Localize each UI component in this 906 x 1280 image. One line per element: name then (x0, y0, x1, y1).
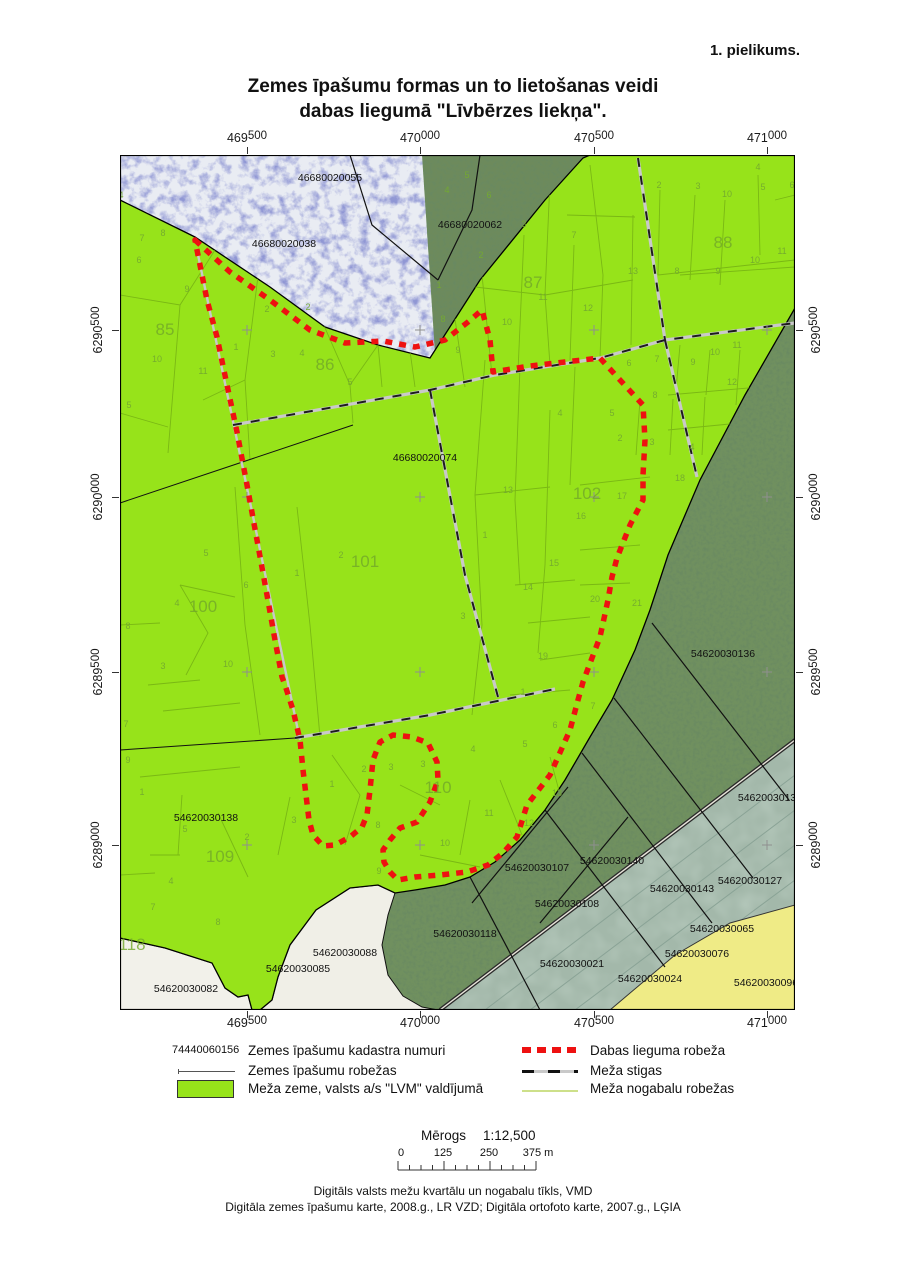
cadastral-number-label: 54620030137 (738, 792, 795, 804)
parcel-number-label: 19 (538, 651, 548, 661)
cadastral-number-label: 54620030127 (718, 875, 782, 887)
parcel-number-label: 3 (521, 219, 526, 229)
cadastral-number-label: 54620030082 (154, 983, 218, 995)
parcel-number-label: 9 (715, 266, 720, 276)
grid-tick (247, 1011, 248, 1018)
parcel-number-label: 2 (264, 304, 269, 314)
parcel-number-label: 5 (203, 548, 208, 558)
grid-tick (594, 1011, 595, 1018)
cadastral-number-label: 54620030136 (691, 648, 755, 660)
parcel-number-label: 10 (710, 347, 720, 357)
grid-tick (420, 1011, 421, 1018)
forest-block-label: 88 (714, 233, 733, 252)
parcel-number-label: 3 (388, 762, 393, 772)
parcel-number-label: 11 (732, 340, 741, 350)
easting-label-bottom: 469500 (227, 1016, 267, 1030)
scale-ruler (396, 1158, 546, 1172)
scale-ratio: 1:12,500 (483, 1128, 536, 1143)
parcel-number-label: 4 (470, 744, 475, 754)
parcel-number-label: 9 (376, 866, 381, 876)
parcel-number-label: 5 (347, 377, 352, 387)
parcel-number-label: 3 (160, 661, 165, 671)
easting-label-bottom: 470500 (574, 1016, 614, 1030)
grid-tick (112, 845, 119, 846)
easting-label-top: 469500 (227, 131, 267, 145)
cadastral-number-label: 54620030021 (540, 958, 604, 970)
parcel-number-label: 11 (777, 246, 786, 256)
parcel-number-label: 20 (590, 594, 600, 604)
cadastral-number-label: 54620030108 (535, 898, 599, 910)
document-page: 1. pielikums. Zemes īpašumu formas un to… (0, 0, 906, 1280)
nogabali-line-swatch (522, 1090, 578, 1092)
cadastral-number-label: 54620030088 (313, 947, 377, 959)
legend-sample-cadastral: 74440060156 (172, 1044, 238, 1056)
parcel-number-label: 6 (552, 720, 557, 730)
cadastral-number-label: 54620030143 (650, 883, 714, 895)
grid-tick (767, 1011, 768, 1018)
parcel-number-label: 18 (675, 473, 685, 483)
parcel-number-label: 3 (695, 181, 700, 191)
annex-label: 1. pielikums. (0, 42, 800, 59)
parcel-number-label: 8 (160, 228, 165, 238)
northing-label-right: 6290000 (809, 474, 823, 521)
parcel-number-label: 2 (656, 180, 661, 190)
cadastral-number-label: 46680020038 (252, 238, 316, 250)
parcel-number-label: 8 (440, 314, 445, 324)
cadastral-number-label: 46680020074 (393, 452, 457, 464)
cadastral-number-label: 54620030107 (505, 862, 569, 874)
forest-block-label: 100 (189, 597, 217, 616)
parcel-number-label: 7 (123, 719, 128, 729)
map-svg: 4876921341011552456372189101112132310456… (120, 155, 795, 1010)
parcel-number-label: 11 (198, 366, 207, 376)
parcel-number-label: 12 (524, 818, 534, 828)
forest-block-label: 87 (524, 273, 543, 292)
parcel-number-label: 5 (522, 739, 527, 749)
cadastral-number-label: 54620030140 (580, 855, 644, 867)
parcel-number-label: 10 (440, 838, 450, 848)
parcel-number-label: 11 (484, 808, 493, 818)
easting-label-bottom: 470000 (400, 1016, 440, 1030)
legend-swatch-forest-fill (177, 1080, 234, 1098)
parcel-number-label: 8 (375, 820, 380, 830)
parcel-number-label: 5 (126, 400, 131, 410)
grid-tick (112, 497, 119, 498)
grid-tick (796, 672, 803, 673)
parcel-number-label: 8 (674, 266, 679, 276)
parcel-number-label: 13 (503, 485, 513, 495)
parcel-number-label: 2 (338, 550, 343, 560)
parcel-number-label: 4 (299, 348, 304, 358)
cadastral-number-label: 46680020055 (298, 172, 362, 184)
parcel-number-label: 10 (750, 255, 760, 265)
legend-label-forest-land: Meža zeme, valsts a/s "LVM" valdījumā (248, 1081, 483, 1096)
parcel-number-label: 1 (329, 779, 334, 789)
parcel-number-label: 17 (617, 491, 627, 501)
parcel-number-label: 10 (722, 189, 732, 199)
easting-label-bottom: 471000 (747, 1016, 787, 1030)
northing-label-left: 6290000 (91, 474, 105, 521)
parcel-number-label: 6 (243, 580, 248, 590)
grid-tick (767, 147, 768, 154)
parcel-number-label: 7 (571, 230, 576, 240)
parcel-number-label: 4 (168, 876, 173, 886)
parcel-number-label: 2 (478, 250, 483, 260)
parcel-number-label: 9 (125, 755, 130, 765)
grid-tick (112, 672, 119, 673)
grid-tick (796, 497, 803, 498)
parcel-number-label: 4 (755, 162, 760, 172)
parcel-number-label: 10 (152, 354, 162, 364)
parcel-number-label: 10 (223, 659, 233, 669)
cadastral-number-label: 54620030118 (433, 928, 497, 940)
property-line-swatch (178, 1071, 235, 1072)
map-title-line2: dabas liegumā "Līvbērzes liekņa". (0, 99, 906, 124)
parcel-number-label: 6 (136, 255, 141, 265)
cadastral-number-label: 54620030024 (618, 973, 682, 985)
parcel-number-label: 7 (139, 233, 144, 243)
parcel-number-label: 5 (182, 824, 187, 834)
cadastral-number-label: 54620030085 (266, 963, 330, 975)
parcel-number-label: 1 (294, 568, 299, 578)
parcel-number-label: 12 (583, 303, 593, 313)
cadastral-number-label: 46680020062 (438, 219, 502, 231)
parcel-number-label: 6 (626, 358, 631, 368)
forest-block-label: 85 (156, 320, 175, 339)
parcel-number-label: 1 (436, 280, 441, 290)
grid-tick (796, 845, 803, 846)
easting-label-top: 471000 (747, 131, 787, 145)
parcel-number-label: 2 (305, 302, 310, 312)
forest-block-label: 110 (424, 778, 451, 797)
legend-label-reserve-boundary: Dabas lieguma robeža (590, 1043, 725, 1058)
parcel-number-label: 1 (139, 787, 144, 797)
parcel-number-label: 9 (690, 357, 695, 367)
grid-tick (112, 330, 119, 331)
parcel-number-label: 13 (552, 788, 562, 798)
forest-block-label: 102 (573, 484, 601, 503)
grid-tick (247, 147, 248, 154)
parcel-number-label: 2 (617, 433, 622, 443)
parcel-number-label: 1 (482, 530, 487, 540)
map-title-line1: Zemes īpašumu formas un to lietošanas ve… (0, 74, 906, 99)
easting-label-top: 470000 (400, 131, 440, 145)
parcel-number-label: 7 (590, 701, 595, 711)
parcel-number-label: 13 (628, 266, 638, 276)
parcel-number-label: 12 (727, 377, 737, 387)
parcel-number-label: 3 (649, 437, 654, 447)
parcel-number-label: 16 (576, 511, 586, 521)
parcel-number-label: 1 (233, 342, 238, 352)
parcel-number-label: 4 (557, 408, 562, 418)
northing-label-right: 6290500 (809, 307, 823, 354)
parcel-number-label: 8 (652, 390, 657, 400)
parcel-number-label: 2 (244, 832, 249, 842)
source-note-line2: Digitāla zemes īpašumu karte, 2008.g., L… (0, 1200, 906, 1214)
forest-block-label: 86 (316, 355, 335, 374)
parcel-number-label: 5 (464, 170, 469, 180)
parcel-number-label: 3 (270, 349, 275, 359)
map-canvas: 4876921341011552456372189101112132310456… (120, 155, 795, 1010)
parcel-number-label: 10 (502, 317, 512, 327)
forest-rides-swatch (522, 1070, 578, 1073)
legend-label-nogabali-borders: Meža nogabalu robežas (590, 1081, 734, 1096)
grid-tick (594, 147, 595, 154)
parcel-number-label: 14 (523, 582, 533, 592)
forest-block-label: 118 (120, 935, 146, 954)
parcel-number-label: 8 (215, 917, 220, 927)
forest-block-label: 101 (351, 552, 379, 571)
parcel-number-label: 9 (184, 284, 189, 294)
legend-label-property-borders: Zemes īpašumu robežas (248, 1063, 397, 1078)
parcel-number-label: 7 (654, 354, 659, 364)
northing-label-left: 6289500 (91, 649, 105, 696)
parcel-number-label: 3 (460, 611, 465, 621)
parcel-number-label: 15 (549, 558, 559, 568)
source-note-line1: Digitāls valsts mežu kvartālu un nogabal… (0, 1184, 906, 1198)
parcel-number-label: 3 (420, 759, 425, 769)
parcel-number-label: 21 (632, 598, 642, 608)
parcel-number-label: 6 (486, 190, 491, 200)
northing-label-right: 6289500 (809, 649, 823, 696)
cadastral-number-label: 54620030138 (174, 812, 238, 824)
parcel-number-label: 5 (609, 408, 614, 418)
easting-label-top: 470500 (574, 131, 614, 145)
northing-label-left: 6289000 (91, 822, 105, 869)
grid-tick (796, 330, 803, 331)
parcel-number-label: 6 (789, 180, 794, 190)
cadastral-number-label: 54620030096 (734, 977, 795, 989)
parcel-number-label: 1 (520, 687, 525, 697)
parcel-number-label: 7 (150, 902, 155, 912)
forest-block-label: 109 (206, 847, 234, 866)
parcel-number-label: 4 (444, 185, 449, 195)
parcel-number-label: 8 (125, 621, 130, 631)
parcel-number-label: 4 (174, 598, 179, 608)
parcel-number-label: 4 (689, 442, 694, 452)
legend-label-forest-rides: Meža stigas (590, 1063, 662, 1078)
parcel-number-label: 5 (760, 182, 765, 192)
cadastral-number-label: 54620030076 (665, 948, 729, 960)
parcel-number-label: 9 (455, 345, 460, 355)
scale-label: Mērogs (421, 1128, 466, 1143)
map-title: Zemes īpašumu formas un to lietošanas ve… (0, 74, 906, 125)
parcel-number-label: 3 (291, 815, 296, 825)
cadastral-number-label: 54620030065 (690, 923, 754, 935)
reserve-boundary-swatch (522, 1047, 578, 1053)
grid-tick (420, 147, 421, 154)
northing-label-left: 6290500 (91, 307, 105, 354)
legend-label-cadastral-numbers: Zemes īpašumu kadastra numuri (248, 1043, 445, 1058)
northing-label-right: 6289000 (809, 822, 823, 869)
parcel-number-label: 11 (538, 292, 547, 302)
parcel-number-label: 2 (361, 764, 366, 774)
